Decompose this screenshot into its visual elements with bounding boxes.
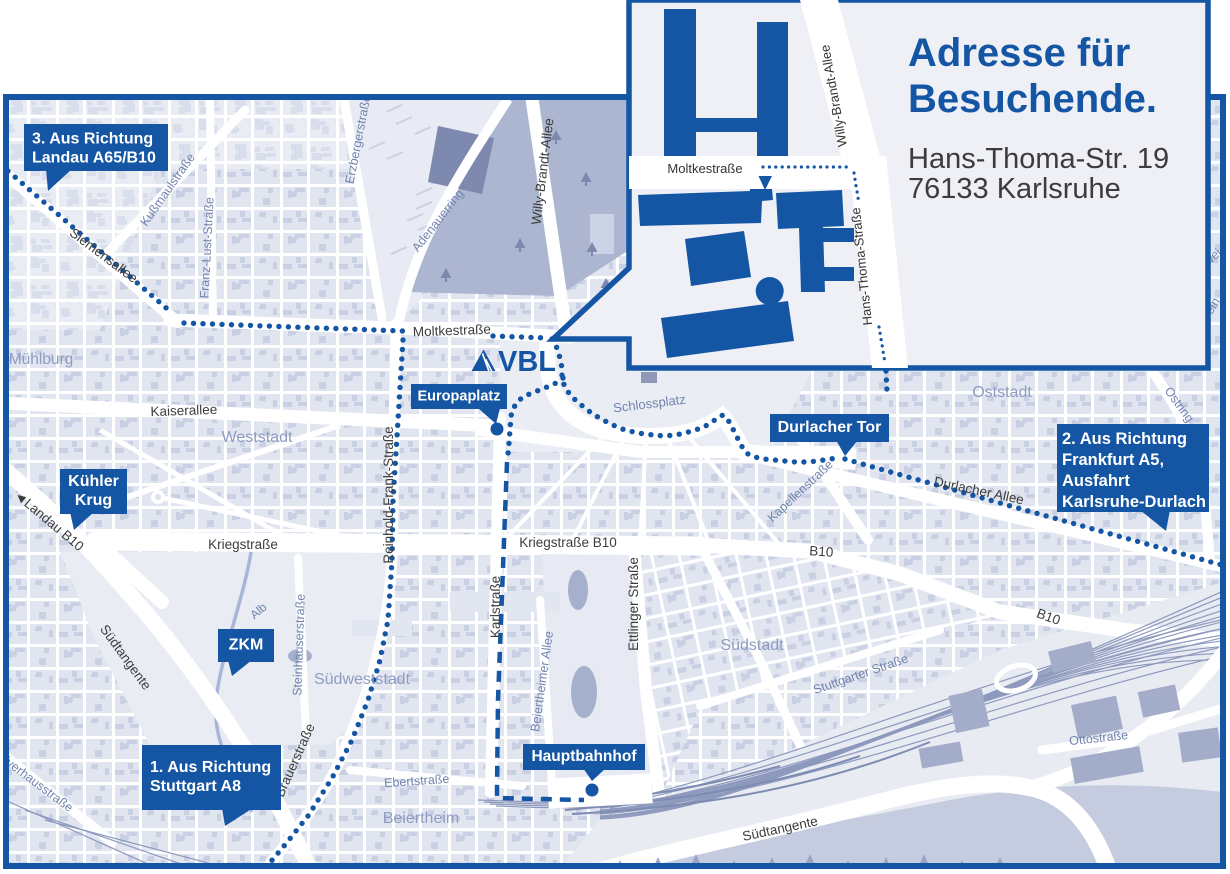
svg-text:Kriegstraße B10: Kriegstraße B10: [519, 535, 617, 550]
svg-text:Reinhold-Frank-Straße: Reinhold-Frank-Straße: [381, 426, 396, 563]
svg-text:Kaiserallee: Kaiserallee: [150, 402, 217, 419]
svg-text:Kriegstraße: Kriegstraße: [208, 537, 278, 552]
svg-text:Weststadt: Weststadt: [222, 429, 293, 446]
svg-text:Mühlburg: Mühlburg: [9, 351, 74, 368]
svg-text:B10: B10: [809, 543, 834, 560]
svg-text:ZKM: ZKM: [229, 637, 264, 654]
svg-text:3. Aus Richtung: 3. Aus Richtung: [32, 131, 153, 148]
svg-text:Moltkestraße: Moltkestraße: [667, 161, 742, 176]
svg-text:Europaplatz: Europaplatz: [418, 389, 501, 405]
svg-text:Stuttgart A8: Stuttgart A8: [150, 778, 241, 795]
svg-text:Karlstraße: Karlstraße: [488, 576, 503, 638]
svg-text:Durlacher Tor: Durlacher Tor: [778, 419, 882, 436]
svg-text:2. Aus Richtung: 2. Aus Richtung: [1062, 430, 1187, 448]
svg-text:Südstadt: Südstadt: [720, 637, 784, 654]
svg-text:Frankfurt A5,: Frankfurt A5,: [1062, 451, 1164, 469]
svg-text:Beiertheim: Beiertheim: [383, 810, 459, 827]
svg-text:76133 Karlsruhe: 76133 Karlsruhe: [908, 173, 1121, 205]
svg-text:Ettlinger Straße: Ettlinger Straße: [626, 557, 641, 651]
svg-text:Südweststadt: Südweststadt: [314, 671, 411, 688]
svg-text:Hans-Thoma-Str. 19: Hans-Thoma-Str. 19: [908, 143, 1169, 175]
svg-text:Kühler: Kühler: [68, 473, 119, 490]
svg-text:Hauptbahnhof: Hauptbahnhof: [531, 748, 637, 765]
svg-text:Karlsruhe-Durlach: Karlsruhe-Durlach: [1062, 493, 1206, 511]
svg-text:Oststadt: Oststadt: [972, 384, 1032, 401]
svg-text:1. Aus Richtung: 1. Aus Richtung: [150, 759, 271, 776]
svg-text:Krug: Krug: [75, 492, 112, 509]
svg-text:Ausfahrt: Ausfahrt: [1062, 472, 1130, 490]
svg-text:Moltkestraße: Moltkestraße: [413, 322, 492, 340]
svg-text:VBL: VBL: [498, 346, 556, 378]
svg-text:Adresse für: Adresse für: [908, 31, 1130, 75]
svg-text:Landau A65/B10: Landau A65/B10: [32, 150, 156, 167]
svg-text:Besuchende.: Besuchende.: [908, 77, 1157, 121]
